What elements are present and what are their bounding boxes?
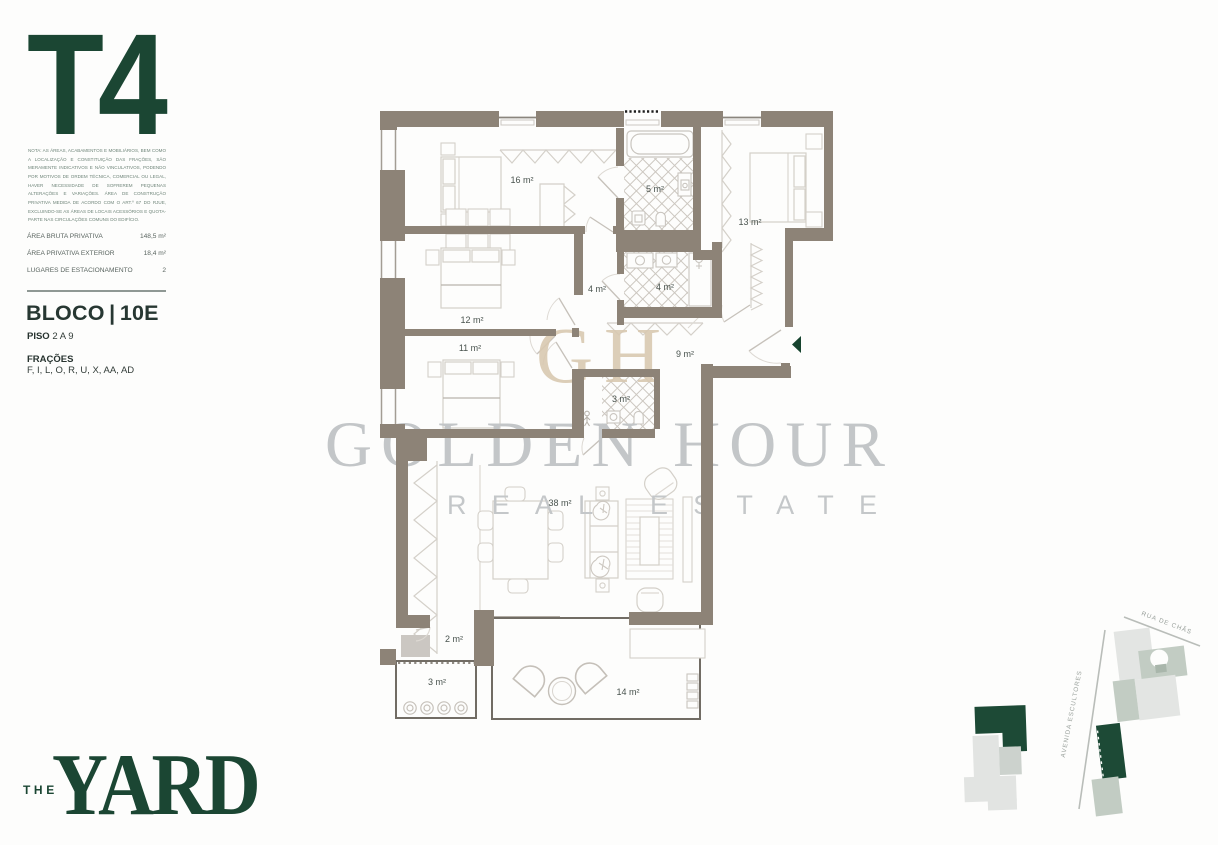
svg-text:3 m²: 3 m²	[428, 677, 446, 687]
svg-text:3 m²: 3 m²	[612, 394, 630, 404]
svg-text:AVENIDA ESCULTORES: AVENIDA ESCULTORES	[1060, 670, 1084, 758]
svg-text:11 m²: 11 m²	[459, 343, 481, 353]
svg-text:14 m²: 14 m²	[616, 687, 639, 697]
svg-text:38 m²: 38 m²	[548, 498, 571, 508]
svg-text:13 m²: 13 m²	[738, 217, 761, 227]
svg-text:4 m²: 4 m²	[656, 282, 674, 292]
svg-text:4 m²: 4 m²	[588, 284, 606, 294]
svg-text:2 m²: 2 m²	[445, 634, 463, 644]
svg-text:H: H	[604, 313, 661, 400]
svg-text:12 m²: 12 m²	[460, 315, 483, 325]
svg-text:G: G	[536, 313, 593, 400]
svg-text:9 m²: 9 m²	[676, 349, 694, 359]
svg-text:16 m²: 16 m²	[510, 175, 533, 185]
svg-text:5 m²: 5 m²	[646, 184, 664, 194]
